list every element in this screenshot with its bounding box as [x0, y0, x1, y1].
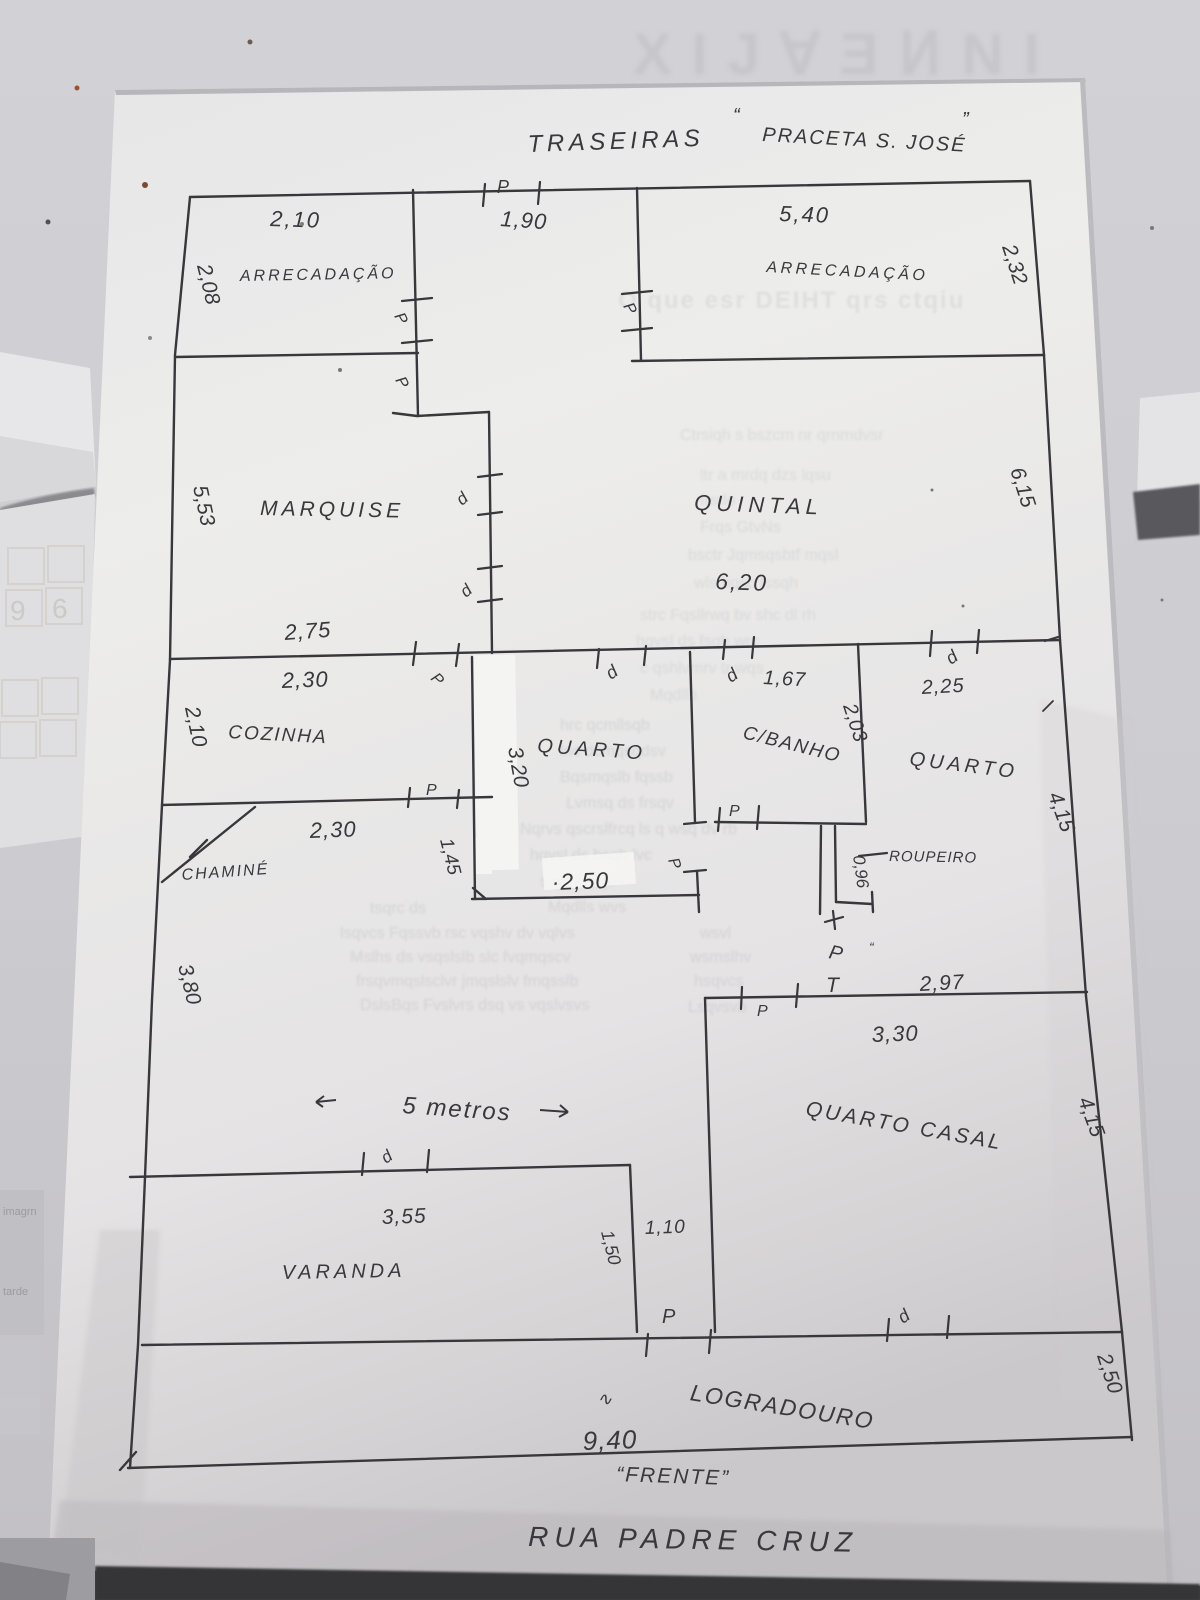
svg-text:Lsqvsvb: Lsqvsvb: [688, 999, 747, 1016]
svg-text:c qshlvmrv tr wqs: c qshlvmrv tr wqs: [640, 660, 764, 677]
svg-text:P: P: [426, 782, 437, 799]
svg-text:ROUPEIRO: ROUPEIRO: [889, 848, 977, 867]
svg-text:imagrn: imagrn: [3, 1206, 37, 1218]
svg-text:Bqsmqslb fqssb: Bqsmqslb fqssb: [560, 769, 673, 786]
svg-text:2,30: 2,30: [308, 816, 357, 843]
svg-text:6: 6: [52, 593, 68, 624]
svg-text:QUINTAL: QUINTAL: [694, 490, 824, 519]
svg-text:2,30: 2,30: [280, 666, 329, 693]
svg-text:2,25: 2,25: [920, 675, 965, 699]
svg-text:3,30: 3,30: [871, 1020, 919, 1047]
svg-text:T: T: [826, 974, 841, 997]
svg-text:Mslhs ds vsqslslb slc fvqmqscv: Mslhs ds vsqslslb slc fvqmqscv: [350, 949, 571, 966]
svg-text:P: P: [662, 1306, 676, 1328]
svg-text:1,10: 1,10: [644, 1217, 686, 1239]
svg-text:wsvl: wsvl: [699, 925, 731, 942]
svg-text:hsqvcs: hsqvcs: [694, 973, 744, 990]
svg-text:Lvmsq ds frsqv: Lvmsq ds frsqv: [566, 795, 674, 812]
svg-text:Ctrsiqh s bszcm nr qrnmdvsr: Ctrsiqh s bszcm nr qrnmdvsr: [680, 427, 884, 444]
svg-text:2,10: 2,10: [269, 206, 322, 233]
svg-text:tsqrc ds: tsqrc ds: [370, 900, 426, 917]
svg-text:P: P: [729, 803, 740, 820]
svg-text:2,75: 2,75: [283, 617, 332, 645]
svg-text:P: P: [757, 1003, 768, 1020]
svg-text:frsqvmqslsclvr jmqslslv fmqssl: frsqvmqslsclvr jmqslslv fmqsslb: [356, 973, 578, 990]
svg-text:MARQUISE: MARQUISE: [260, 497, 404, 523]
svg-text:RUA PADRE CRUZ: RUA PADRE CRUZ: [528, 1521, 858, 1558]
svg-text:5,40: 5,40: [779, 201, 831, 228]
svg-text:O que esr DEIHT qrs ctqiu: O que esr DEIHT qrs ctqiu: [618, 287, 965, 314]
svg-text:2,97: 2,97: [918, 971, 965, 996]
svg-text:“FRENTE”: “FRENTE”: [616, 1463, 731, 1490]
svg-text:Frqs GtvNs: Frqs GtvNs: [700, 519, 781, 536]
svg-text:∿: ∿: [597, 1389, 612, 1409]
svg-text:DslsBqs Fvslvrs dsq vs vqslvsv: DslsBqs Fvslvrs dsq vs vqslvsvs: [360, 997, 589, 1014]
svg-text:1,90: 1,90: [500, 206, 548, 234]
svg-text:strc Fqsllrwq bv shc dl rh: strc Fqsllrwq bv shc dl rh: [640, 607, 816, 624]
svg-text:ltr a mrdq dzs lqsu: ltr a mrdq dzs lqsu: [700, 467, 831, 484]
svg-text:XIJ∀ƎͶNI: XIJ∀ƎͶNI: [633, 22, 1060, 87]
svg-text:9: 9: [10, 595, 26, 626]
svg-text:Nqrvs qscrslfrcq ls q wsq dv r: Nqrvs qscrslfrcq ls q wsq dv rb: [520, 821, 737, 838]
svg-text:P: P: [497, 177, 509, 197]
svg-text:9,40: 9,40: [582, 1424, 638, 1456]
svg-text:·2,50: ·2,50: [551, 867, 609, 895]
svg-text:lsqvcs Fqssvb rsc vqshv dv vql: lsqvcs Fqssvb rsc vqshv dv vqlvs: [340, 925, 575, 942]
svg-text:3,55: 3,55: [381, 1204, 427, 1229]
svg-text:6,20: 6,20: [715, 568, 769, 596]
svg-text:bsctr Jqmsqsbtf mqsl: bsctr Jqmsqsbtf mqsl: [688, 547, 838, 564]
svg-text:hrc qcmllsqb: hrc qcmllsqb: [560, 717, 650, 734]
svg-text:Mqdlls wvs: Mqdlls wvs: [548, 899, 626, 916]
svg-text:1,67: 1,67: [763, 667, 807, 691]
svg-text:VARANDA: VARANDA: [282, 1260, 406, 1284]
svg-text:tarde: tarde: [3, 1286, 28, 1298]
svg-text:wsmslhv: wsmslhv: [689, 949, 751, 966]
